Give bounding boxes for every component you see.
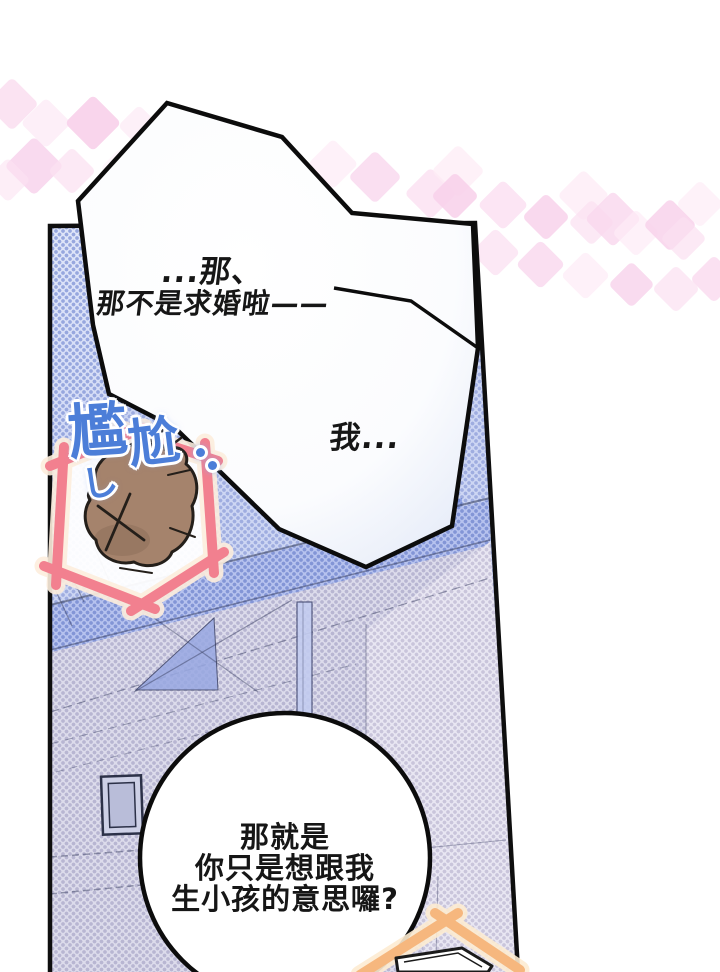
dialogue-bottom-line3: 生小孩的意思囉? xyxy=(135,876,435,918)
dialogue-top-line2: 那不是求婚啦—— xyxy=(86,282,341,322)
sfx-swoosh: し xyxy=(79,463,121,505)
comic-page: ...那、 那不是求婚啦—— 我... 那就是 你只是想跟我 生小孩的意思囉? … xyxy=(0,0,720,972)
sfx-text-char1: 尷 xyxy=(66,400,130,464)
sfx-text-char2: 尬 xyxy=(125,414,183,472)
sfx-dot xyxy=(196,448,205,457)
dialogue-mid: 我... xyxy=(327,412,403,457)
sfx-dot xyxy=(208,461,217,470)
